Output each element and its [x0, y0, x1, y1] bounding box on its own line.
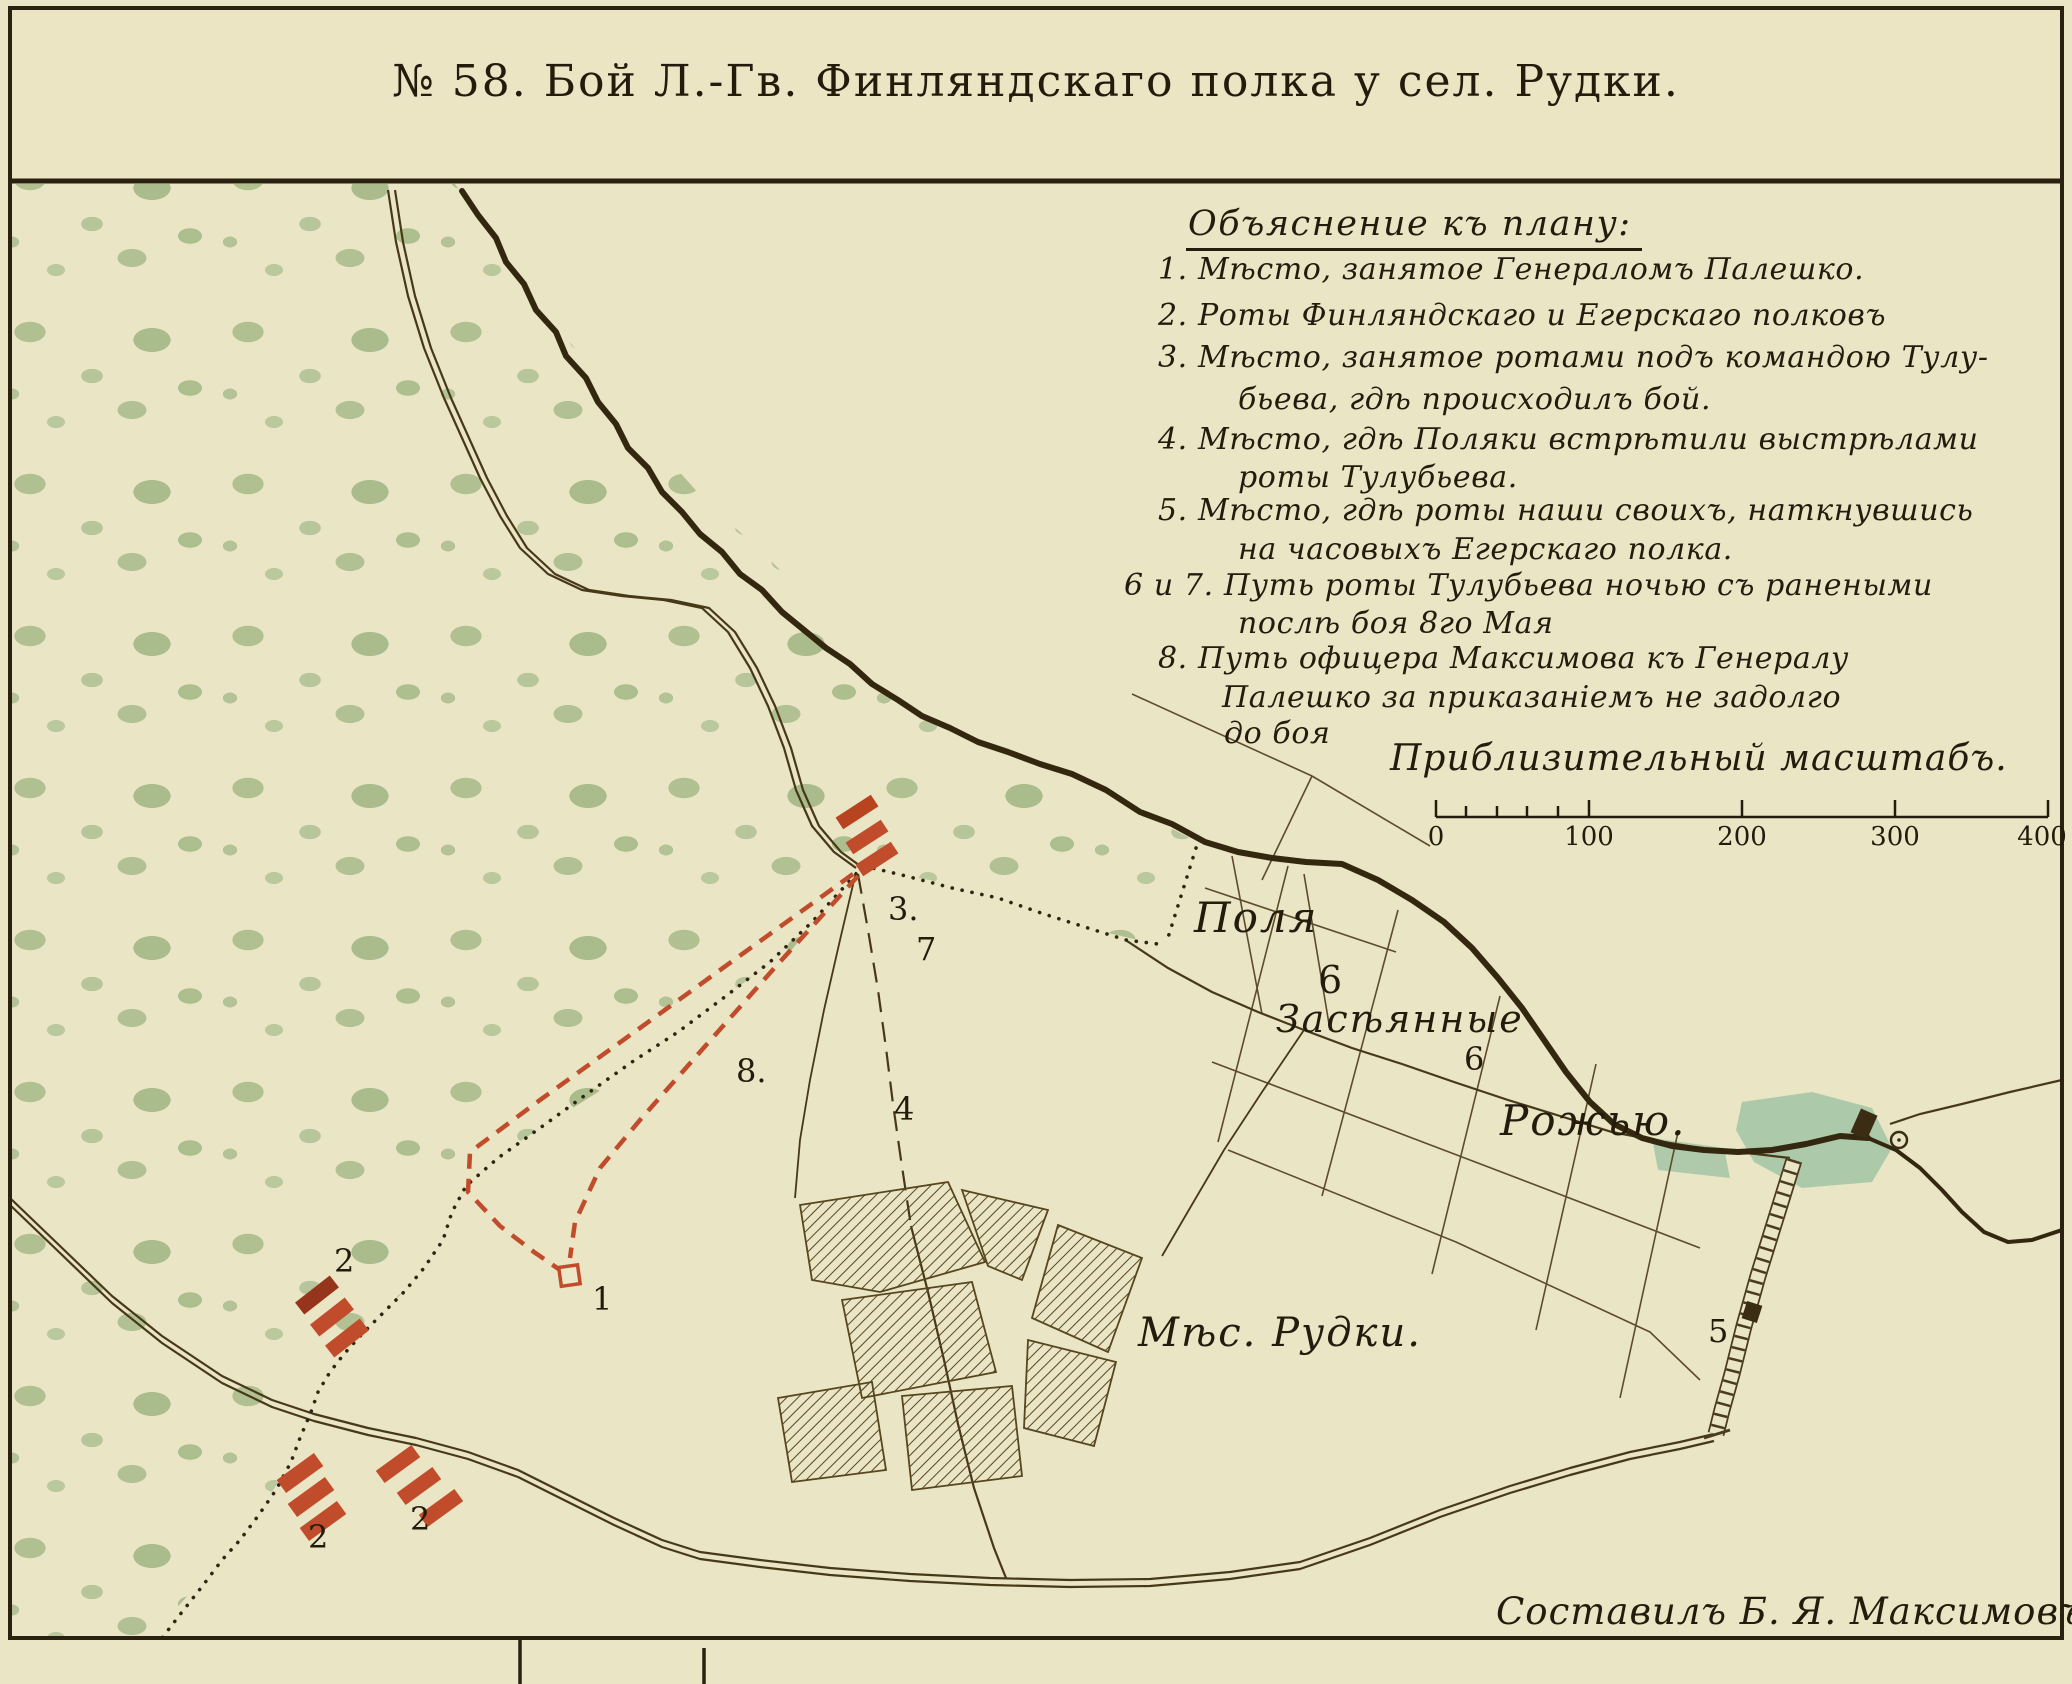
label-fields: Поля: [1194, 893, 1318, 942]
point-label-2: 2: [410, 1500, 430, 1538]
compiler-signature: Составилъ Б. Я. Максимовъ.: [1496, 1590, 2072, 1633]
label-rye: Рожью.: [1500, 1096, 1686, 1145]
point-label-6: 6: [1464, 1040, 1484, 1078]
scale-tick-label: 400: [2012, 822, 2072, 852]
legend-line: 6 и 7. Путь роты Тулубьева ночью съ ране…: [1124, 568, 1933, 603]
marker-2-left-bars: [295, 1276, 369, 1358]
map-plate: № 58. Бой Л.-Гв. Финляндскаго полка у се…: [0, 0, 2072, 1684]
point-label-3: 3.: [888, 890, 919, 928]
legend-line: послѣ боя 8го Мая: [1238, 606, 1554, 641]
scale-caption: Приблизительный масштабъ.: [1390, 738, 2008, 779]
point-label-5: 5: [1708, 1312, 1728, 1350]
scale-bar: [1436, 800, 2048, 817]
point-label-2: 2: [308, 1518, 328, 1556]
field-boundaries: [1132, 694, 1700, 1398]
label-sown: Засѣянные: [1276, 997, 1524, 1041]
point-label-8: 8.: [736, 1052, 767, 1090]
point-label-7: 7: [916, 930, 936, 968]
point-label-2: 2: [334, 1242, 354, 1280]
point-label-6: 6: [1318, 958, 1342, 1002]
legend-line: роты Тулубьева.: [1238, 460, 1518, 495]
scale-tick-label: 300: [1865, 822, 1925, 852]
legend-heading: Объяснение къ плану:: [1186, 204, 1642, 251]
marker-1-flag: [559, 1265, 580, 1286]
legend-line: 2. Роты Финляндскаго и Егерскаго полковъ: [1158, 298, 1886, 333]
legend-line: 5. Мѣсто, гдѣ роты наши своихъ, наткнувш…: [1158, 493, 1973, 528]
point-label-4: 4: [894, 1090, 914, 1128]
plate-title: № 58. Бой Л.-Гв. Финляндскаго полка у се…: [392, 56, 1680, 107]
legend-line: 1. Мѣсто, занятое Генераломъ Палешко.: [1158, 252, 1864, 287]
scale-tick-label: 100: [1559, 822, 1619, 852]
village-blocks: [778, 1182, 1142, 1490]
label-village-rudki: Мѣс. Рудки.: [1138, 1310, 1422, 1356]
legend-line: на часовыхъ Егерскаго полка.: [1238, 532, 1733, 567]
legend-line: бьева, гдѣ происходилъ бой.: [1238, 382, 1711, 417]
scale-tick-label: 0: [1406, 822, 1466, 852]
legend-line: до боя: [1224, 716, 1330, 751]
legend-line: Палешко за приказаніемъ не задолго: [1222, 680, 1841, 715]
point-label-1: 1: [592, 1280, 612, 1318]
legend-line: 3. Мѣсто, занятое ротами подъ командою Т…: [1158, 340, 1989, 375]
causeway: [1704, 1160, 1794, 1438]
legend-line: 8. Путь офицера Максимова къ Генералу: [1158, 641, 1849, 676]
legend-line: 4. Мѣсто, гдѣ Поляки встрѣтили выстрѣлам…: [1158, 422, 1979, 457]
scale-tick-label: 200: [1712, 822, 1772, 852]
marker-3-bars: [836, 795, 899, 877]
